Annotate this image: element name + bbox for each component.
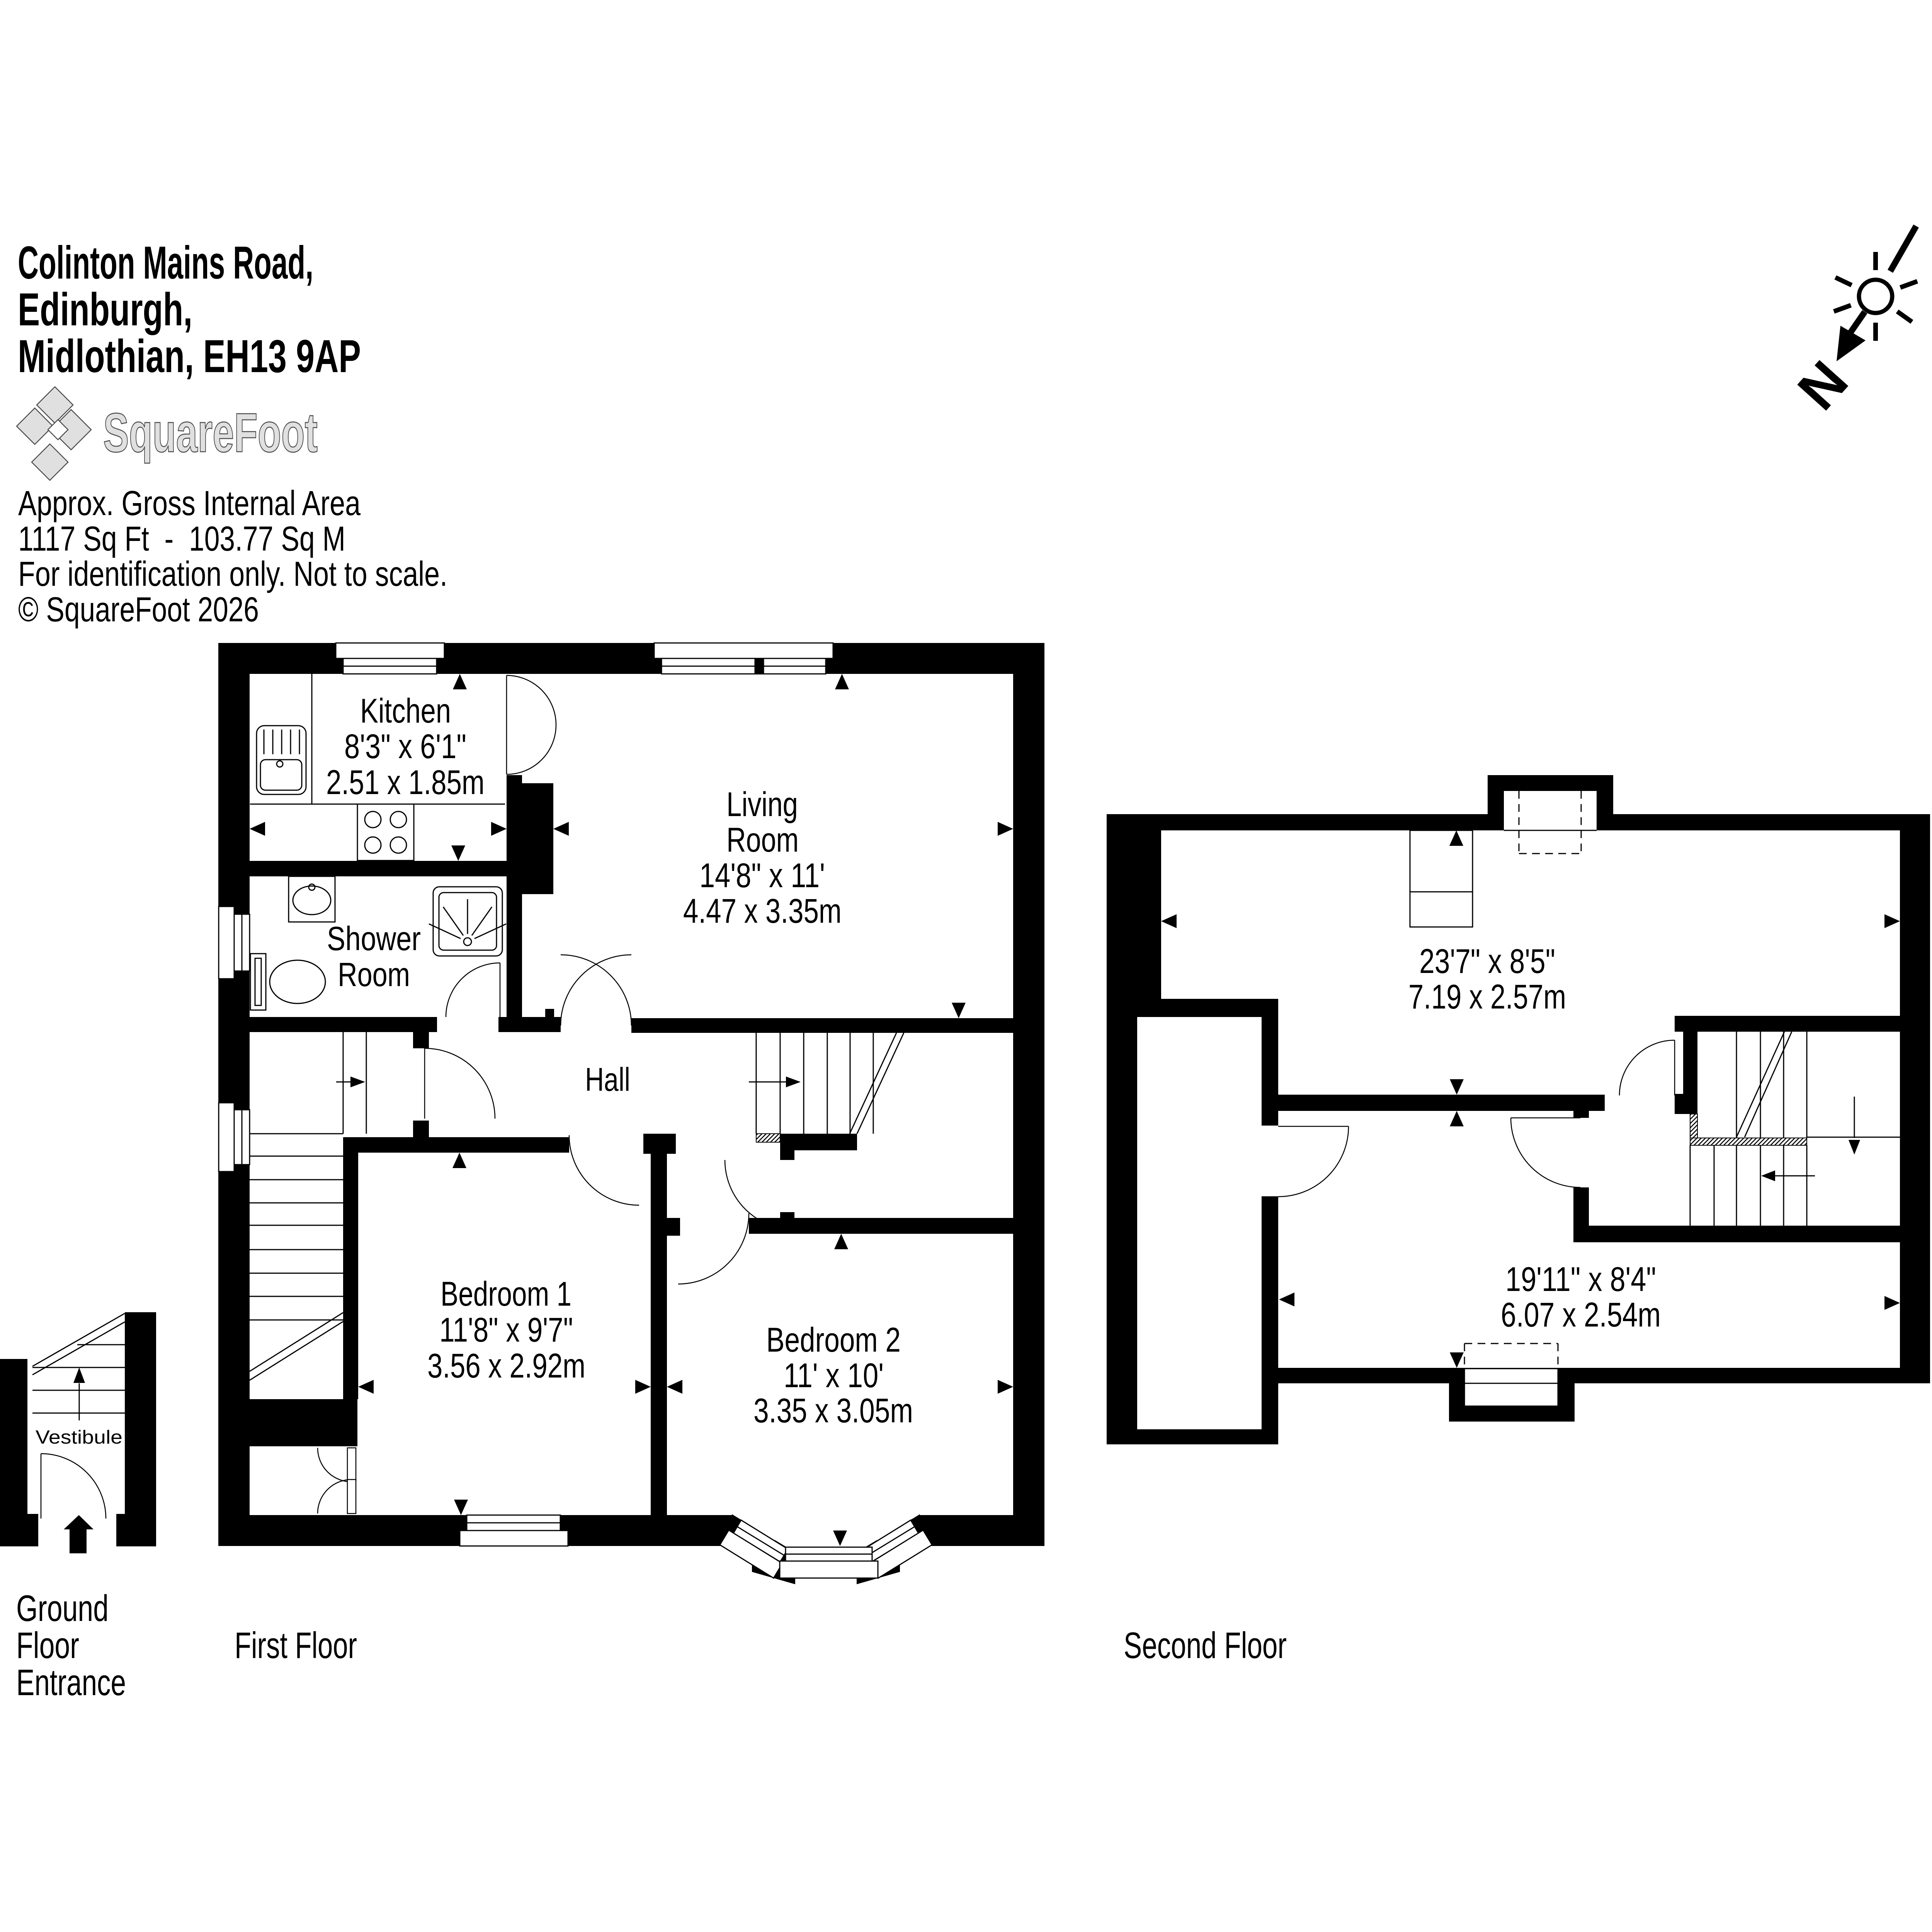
svg-text:Approx. Gross Internal Area: Approx. Gross Internal Area xyxy=(18,484,361,523)
svg-text:Vestibule: Vestibule xyxy=(36,1427,122,1448)
svg-text:First Floor: First Floor xyxy=(235,1625,357,1666)
svg-text:Second Floor: Second Floor xyxy=(1124,1625,1287,1666)
svg-text:Kitchen: Kitchen xyxy=(360,691,451,730)
svg-text:4.47 x 3.35m: 4.47 x 3.35m xyxy=(683,891,842,930)
svg-text:SquareFoot: SquareFoot xyxy=(103,402,318,464)
svg-text:19'11" x 8'4": 19'11" x 8'4" xyxy=(1505,1260,1656,1298)
svg-text:Edinburgh,: Edinburgh, xyxy=(18,284,192,335)
svg-text:Hall: Hall xyxy=(585,1061,630,1098)
svg-text:For identification only. Not t: For identification only. Not to scale. xyxy=(18,555,447,594)
svg-text:Living: Living xyxy=(726,785,798,823)
svg-text:3.56 x 2.92m: 3.56 x 2.92m xyxy=(427,1346,585,1385)
svg-text:Colinton Mains Road,: Colinton Mains Road, xyxy=(18,237,313,289)
svg-text:Ground: Ground xyxy=(16,1588,109,1629)
svg-text:Room: Room xyxy=(726,820,799,859)
svg-text:8'3" x 6'1": 8'3" x 6'1" xyxy=(344,727,466,765)
svg-text:6.07 x 2.54m: 6.07 x 2.54m xyxy=(1501,1295,1661,1334)
svg-text:3.35 x 3.05m: 3.35 x 3.05m xyxy=(753,1391,913,1430)
svg-text:Bedroom 2: Bedroom 2 xyxy=(766,1320,901,1359)
svg-text:11'8" x 9'7": 11'8" x 9'7" xyxy=(439,1310,573,1349)
svg-text:Bedroom 1: Bedroom 1 xyxy=(440,1274,571,1313)
svg-text:Floor: Floor xyxy=(16,1625,79,1666)
svg-text:7.19 x 2.57m: 7.19 x 2.57m xyxy=(1408,977,1566,1016)
svg-text:Shower: Shower xyxy=(327,920,421,957)
svg-text:11' x 10': 11' x 10' xyxy=(784,1356,884,1395)
svg-text:23'7" x 8'5": 23'7" x 8'5" xyxy=(1419,942,1555,980)
svg-text:© SquareFoot 2026: © SquareFoot 2026 xyxy=(18,590,259,629)
svg-text:Midlothian, EH13 9AP: Midlothian, EH13 9AP xyxy=(18,330,361,382)
svg-text:1117 Sq Ft - 103.77 Sq M: 1117 Sq Ft - 103.77 Sq M xyxy=(18,520,345,558)
svg-text:14'8" x 11': 14'8" x 11' xyxy=(699,856,825,895)
svg-text:Room: Room xyxy=(338,956,410,993)
svg-text:2.51 x 1.85m: 2.51 x 1.85m xyxy=(326,763,485,801)
svg-text:Entrance: Entrance xyxy=(16,1662,126,1703)
